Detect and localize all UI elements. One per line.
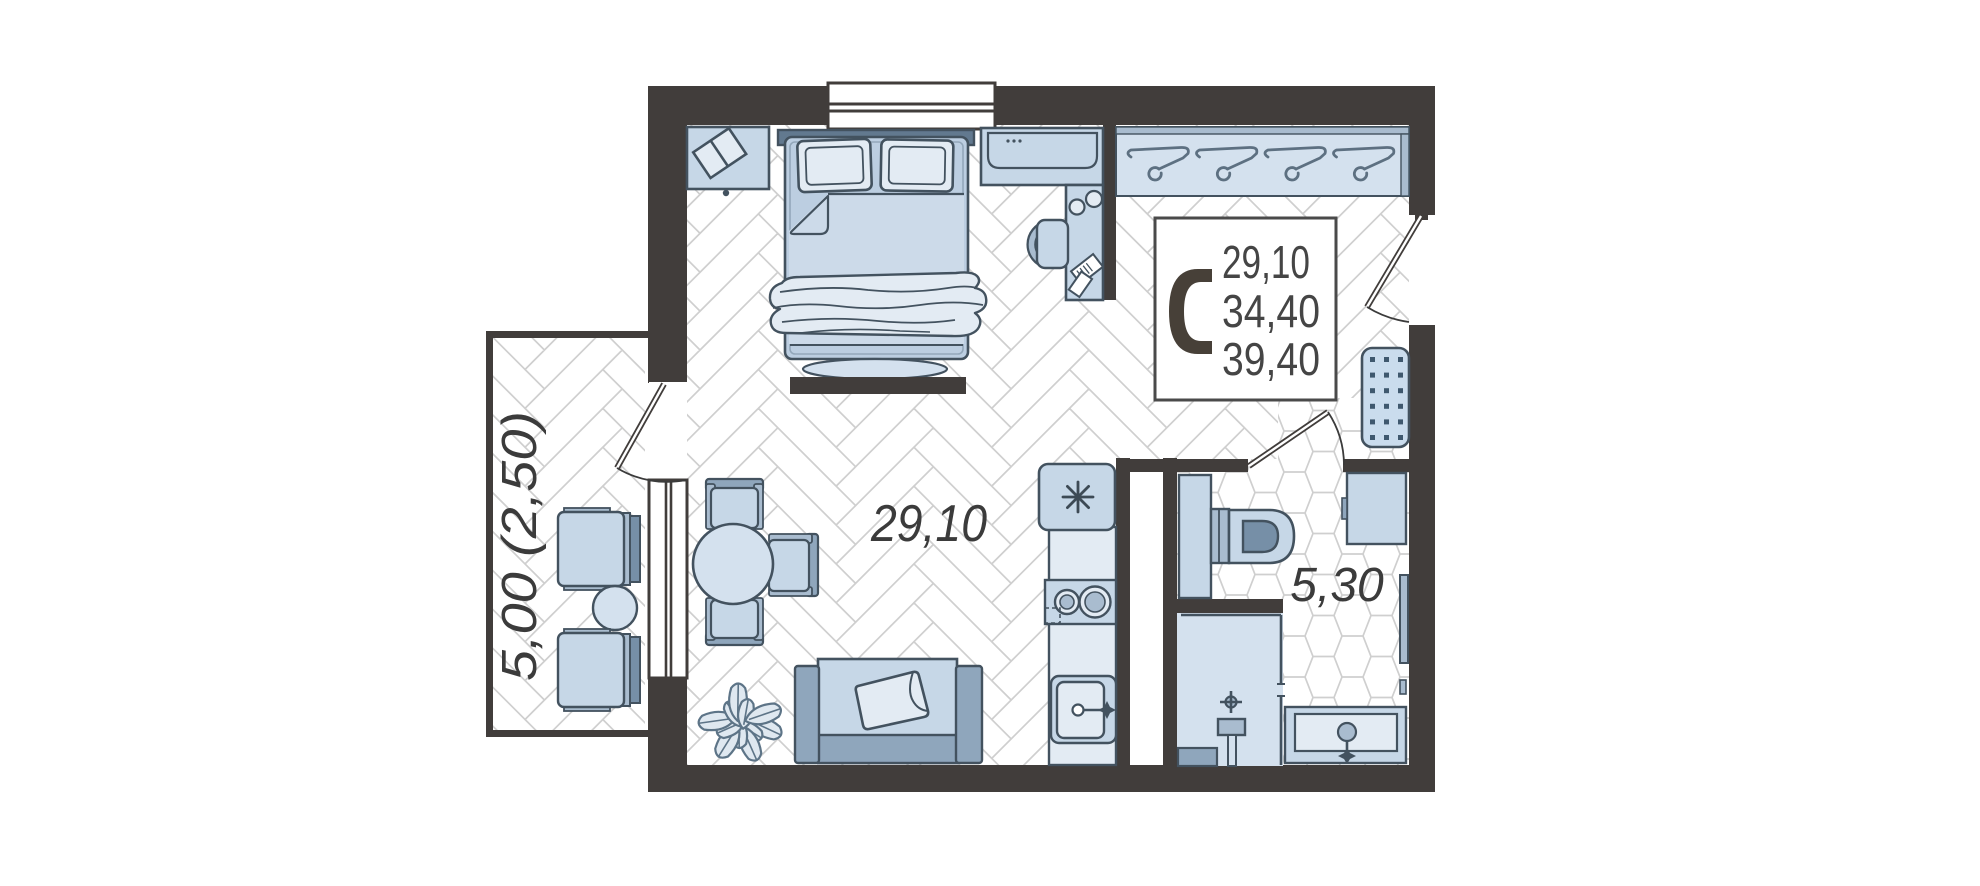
svg-text:5,00 (2,50): 5,00 (2,50) bbox=[493, 411, 547, 681]
svg-text:5,30: 5,30 bbox=[1290, 559, 1384, 612]
svg-text:29,10: 29,10 bbox=[870, 495, 987, 553]
svg-text:29,10: 29,10 bbox=[1222, 236, 1310, 288]
svg-text:34,40: 34,40 bbox=[1222, 285, 1320, 337]
svg-text:39,40: 39,40 bbox=[1222, 333, 1320, 385]
